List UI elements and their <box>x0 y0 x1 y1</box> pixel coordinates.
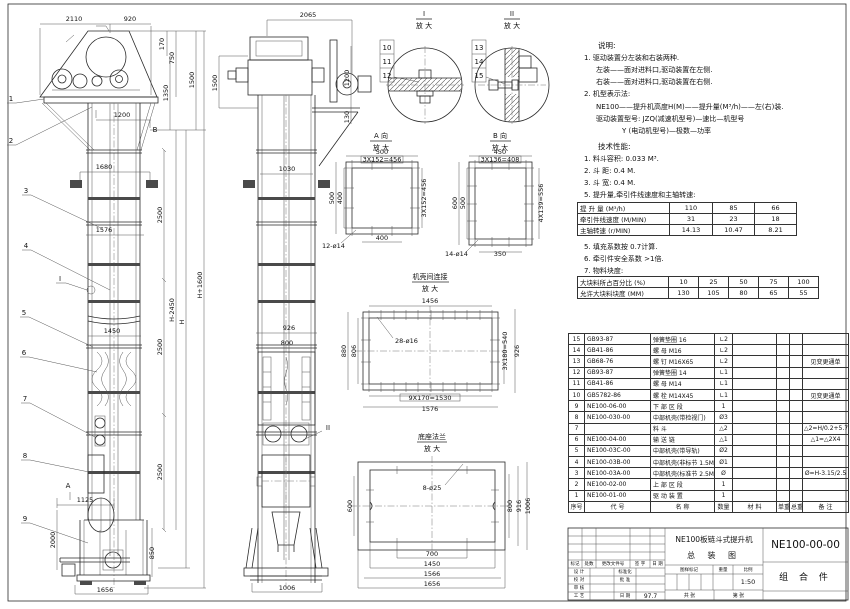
part-name: 螺 钉 M16X65 <box>651 356 715 367</box>
part-unit-weight <box>777 378 790 389</box>
part-total-weight <box>790 356 803 367</box>
note-line: 右装——面对进料口,驱动装置在右侧. <box>596 79 712 86</box>
tb-sig-label: 工 艺 <box>568 592 590 600</box>
dim-label: 926 <box>513 345 521 357</box>
part-name: 中部机壳(非标节 1.5M,1M) <box>651 457 715 468</box>
part-qty: Ø1 <box>715 457 733 468</box>
tb-rev-col: 更改文件号 <box>596 560 630 568</box>
tb-rev-col: 日 期 <box>650 560 665 568</box>
tb-sig-label: 校 对 <box>568 576 590 584</box>
dim-label: 9X170=1530 <box>409 394 452 402</box>
tech-line: 6. 牵引件安全系数 >1倍. <box>584 256 664 263</box>
dim-label: 2000 <box>49 532 57 549</box>
part-material <box>733 457 777 468</box>
detail-marker-ii: II <box>326 424 330 432</box>
part-no: 9 <box>569 401 585 412</box>
tb-sheets: 共 张 <box>665 590 714 600</box>
view-b-title: B 向 <box>493 131 507 140</box>
part-unit-weight <box>777 457 790 468</box>
parts-row: 14GB41-86螺 母 M16∟2 <box>569 345 849 356</box>
part-code: GB5782-86 <box>585 389 651 400</box>
part-qty: △1 <box>715 434 733 445</box>
lump-value: 25 <box>699 277 729 288</box>
balloon-7: 7 <box>23 395 27 403</box>
dim-label: 1006 <box>524 498 532 515</box>
tb-stamp-label: 图样标记 <box>665 565 713 574</box>
tb-sig-label: 标准化 <box>614 568 636 576</box>
part-material <box>733 356 777 367</box>
lump-value: 55 <box>789 288 819 299</box>
tb-rev-col: 处数 <box>582 560 596 568</box>
drawing-scale: 1:50 <box>733 574 763 590</box>
view-marker-a: A <box>66 482 71 490</box>
parts-list: 15GB93-87弹簧垫圈 16∟2 14GB41-86螺 母 M16∟2 13… <box>568 333 849 513</box>
hole-callout: 8-ø25 <box>423 484 442 492</box>
tb-rev-col: 标记 <box>568 560 582 568</box>
dim-label: 806 <box>350 345 358 357</box>
dim-label: 1200 <box>114 111 131 119</box>
capacity-row-label: 提 升 量 (M³/h) <box>578 203 670 214</box>
dim-label: 350 <box>494 250 506 258</box>
part-qty: Ø3 <box>715 412 733 423</box>
dim-label: 1456 <box>422 297 439 305</box>
capacity-value: 18 <box>755 214 797 225</box>
part-name: 中部机壳(带导轨) <box>651 445 715 456</box>
tb-page: 第 张 <box>714 590 763 600</box>
part-name: 上 部 区 段 <box>651 479 715 490</box>
part-unit-weight <box>777 334 790 345</box>
lump-size-table: 大块料所占百分比 (%) 10 25 50 75 100 允许大块料块度 (MM… <box>577 276 819 299</box>
part-unit-weight <box>777 401 790 412</box>
tb-weight-label: 重量 <box>713 565 733 574</box>
parts-row: 4NE100-03B-00中部机壳(非标节 1.5M,1M)Ø1 <box>569 457 849 468</box>
balloon-4: 4 <box>24 242 29 250</box>
part-total-weight <box>790 445 803 456</box>
part-total-weight <box>790 468 803 479</box>
parts-header-material: 材 料 <box>733 501 777 512</box>
parts-header-row: 序号代 号名 称数量材 料单重总重备 注 <box>569 501 849 512</box>
balloon-9: 9 <box>23 515 27 523</box>
tb-sig-label: 设 计 <box>568 568 590 576</box>
capacity-value: 66 <box>755 203 797 214</box>
tech-line: 3. 斗 宽: 0.4 M. <box>584 180 635 187</box>
view-b: B 向 放 大 450 3X136=408 600 500 350 4X139=… <box>445 131 545 258</box>
part-total-weight <box>790 367 803 378</box>
balloon-10: 10 <box>383 44 392 52</box>
dim-label: 170 <box>158 38 166 50</box>
part-material <box>733 468 777 479</box>
part-remark <box>803 457 849 468</box>
dim-label: 1006 <box>279 584 296 592</box>
part-remark: Ø=H-3.15/2.5 <box>803 468 849 479</box>
note-line: Y (电动机型号)—极数—功率 <box>622 128 711 135</box>
flange-scale: 放 大 <box>422 284 438 293</box>
base-flange-view: 底座法兰 放 大 8-ø25 600 800 916 1006 700 1450… <box>346 432 532 588</box>
drawing-number: NE100-00-00 <box>763 528 848 562</box>
dim-label: 750 <box>168 52 176 64</box>
dim-label: H <box>178 319 186 324</box>
flange-title: 机壳间连接 <box>413 272 448 281</box>
part-name: 螺 母 M14 <box>651 378 715 389</box>
dim-label: 3X152=456 <box>420 179 428 218</box>
part-code: GB41-86 <box>585 378 651 389</box>
drawing-title: NE100板链斗式提升机 <box>666 529 762 549</box>
part-code: NE100-03B-00 <box>585 457 651 468</box>
part-total-weight <box>790 412 803 423</box>
part-remark <box>803 401 849 412</box>
parts-row: 5NE100-03C-00中部机壳(带导轨)Ø2 <box>569 445 849 456</box>
balloon-15: 15 <box>475 72 484 80</box>
capacity-value: 23 <box>713 214 755 225</box>
view-marker-b: B <box>153 126 158 134</box>
part-total-weight <box>790 378 803 389</box>
dim-label: 1656 <box>97 586 114 594</box>
part-total-weight <box>790 334 803 345</box>
part-material <box>733 401 777 412</box>
part-qty: ∟2 <box>715 334 733 345</box>
dim-label: 3X180=540 <box>501 332 509 371</box>
lump-value: 100 <box>789 277 819 288</box>
lump-value: 105 <box>699 288 729 299</box>
part-code: NE100-03A-00 <box>585 468 651 479</box>
dim-label: 2500 <box>156 207 164 224</box>
dim-label: 1576 <box>422 405 439 413</box>
dim-label: 600 <box>346 500 354 512</box>
part-material <box>733 445 777 456</box>
part-no: 10 <box>569 389 585 400</box>
part-material <box>733 367 777 378</box>
part-no: 8 <box>569 412 585 423</box>
dim-label: 880 <box>340 345 348 357</box>
part-name: 输 送 链 <box>651 434 715 445</box>
dim-label: 1656 <box>424 580 441 588</box>
tb-rev-col: 签 字 <box>630 560 650 568</box>
balloon-13: 13 <box>475 44 484 52</box>
part-remark: 见变更通单 <box>803 356 849 367</box>
part-qty: 1 <box>715 479 733 490</box>
balloon-14: 14 <box>475 58 484 66</box>
parts-row: 9NE100-06-00下 部 区 段1 <box>569 401 849 412</box>
balloon-8: 8 <box>23 452 27 460</box>
part-total-weight <box>790 490 803 501</box>
hole-callout: 28-ø16 <box>395 337 418 345</box>
dim-label: 2500 <box>156 339 164 356</box>
tech-line: 7. 物料块度: <box>584 268 623 275</box>
part-code <box>585 423 651 434</box>
dim-label: 2500 <box>156 464 164 481</box>
hole-callout: 14-ø14 <box>445 250 468 258</box>
note-line: 2. 机型表示法: <box>584 91 630 98</box>
part-material <box>733 378 777 389</box>
dim-label: 1200 <box>343 70 351 87</box>
part-qty: 1 <box>715 490 733 501</box>
part-total-weight <box>790 389 803 400</box>
dim-label: 2065 <box>300 11 317 19</box>
part-code: NE100-02-00 <box>585 479 651 490</box>
part-no: 3 <box>569 468 585 479</box>
lump-value: 65 <box>759 288 789 299</box>
parts-row: 2NE100-02-00上 部 区 段1 <box>569 479 849 490</box>
detail-i-title: I <box>423 10 425 18</box>
part-remark: △2=H/0.2+5.75 <box>803 423 849 434</box>
part-qty: △2 <box>715 423 733 434</box>
part-material <box>733 345 777 356</box>
support-bracket-right <box>146 180 158 188</box>
part-code: NE100-01-00 <box>585 490 651 501</box>
capacity-value: 31 <box>670 214 713 225</box>
part-remark: 见变更通单 <box>803 389 849 400</box>
part-code: NE100-030-00 <box>585 412 651 423</box>
dim-label: H-2450 <box>168 298 176 322</box>
part-unit-weight <box>777 434 790 445</box>
part-name: 料 斗 <box>651 423 715 434</box>
tech-heading: 技术性能: <box>598 143 631 151</box>
part-no: 11 <box>569 378 585 389</box>
part-total-weight <box>790 401 803 412</box>
base-title: 底座法兰 <box>418 432 446 441</box>
dim-label: 1450 <box>104 327 121 335</box>
part-material <box>733 434 777 445</box>
part-material <box>733 389 777 400</box>
parts-header-name: 名 称 <box>651 501 715 512</box>
parts-row: 3NE100-03A-00中部机壳(标准节 2.5M)ØØ=H-3.15/2.5 <box>569 468 849 479</box>
balloon-3: 3 <box>24 187 28 195</box>
part-qty: ∟2 <box>715 356 733 367</box>
part-material <box>733 490 777 501</box>
part-no: 4 <box>569 457 585 468</box>
part-no: 2 <box>569 479 585 490</box>
parts-header-remark: 备 注 <box>803 501 849 512</box>
balloon-5: 5 <box>22 309 26 317</box>
dim-label: 1680 <box>96 163 113 171</box>
part-remark: △1=△2X4 <box>803 434 849 445</box>
part-code: GB93-87 <box>585 367 651 378</box>
dim-label: 400 <box>336 192 344 204</box>
capacity-value: 110 <box>670 203 713 214</box>
part-qty: ∟2 <box>715 345 733 356</box>
notes-heading: 说明: <box>598 42 616 50</box>
parts-header-total-weight: 总重 <box>790 501 803 512</box>
detail-marker-i: I <box>59 275 61 283</box>
lump-value: 130 <box>669 288 699 299</box>
part-remark <box>803 345 849 356</box>
tb-scale-label: 比例 <box>733 565 763 574</box>
part-no: 15 <box>569 334 585 345</box>
dim-label: 920 <box>124 15 136 23</box>
drawing-subtitle: 总 装 图 <box>666 547 762 564</box>
part-remark <box>803 445 849 456</box>
lump-value: 80 <box>729 288 759 299</box>
part-remark <box>803 479 849 490</box>
balloon-1: 1 <box>9 95 13 103</box>
part-qty: Ø <box>715 468 733 479</box>
dim-label: 1500 <box>188 72 196 89</box>
dim-label: 500 <box>328 192 336 204</box>
dim-label: 1576 <box>96 226 113 234</box>
dim-label: 700 <box>426 550 438 558</box>
parts-row: 6NE100-04-00输 送 链△1△1=△2X4 <box>569 434 849 445</box>
dim-label: 1030 <box>279 165 296 173</box>
dim-label: 600 <box>451 197 459 209</box>
parts-row: 15GB93-87弹簧垫圈 16∟2 <box>569 334 849 345</box>
part-qty: 1 <box>715 401 733 412</box>
part-code: NE100-03C-00 <box>585 445 651 456</box>
view-a-title: A 向 <box>374 131 388 140</box>
hole-callout: 12-ø14 <box>322 242 345 250</box>
dim-label: 3X136=408 <box>481 156 520 164</box>
dim-label: 1500 <box>211 75 219 92</box>
part-qty: Ø2 <box>715 445 733 456</box>
parts-row: 10GB5782-86螺 栓 M14X45∟1见变更通单 <box>569 389 849 400</box>
part-no: 13 <box>569 356 585 367</box>
balloon-12: 12 <box>383 72 392 80</box>
part-name: 螺 母 M16 <box>651 345 715 356</box>
part-name: 螺 栓 M14X45 <box>651 389 715 400</box>
note-line: NE100——提升机高度H(M)——提升量(M³/h)——左(右)装. <box>596 104 784 111</box>
base-scale: 放 大 <box>424 444 440 453</box>
lump-row-label: 允许大块料块度 (MM) <box>578 288 669 299</box>
dim-label: 2110 <box>66 15 83 23</box>
tech-line: 1. 料斗容积: 0.033 M³. <box>584 156 659 163</box>
part-unit-weight <box>777 490 790 501</box>
part-no: 7 <box>569 423 585 434</box>
tb-sig-label: 批 准 <box>614 576 636 584</box>
tech-line: 5. 提升量,牵引件线速度和主轴转速: <box>584 192 696 199</box>
detail-i: I 放 大 10 11 12 <box>380 10 464 124</box>
dim-label: 500 <box>459 197 467 209</box>
part-unit-weight <box>777 367 790 378</box>
dim-label: 800 <box>281 339 293 347</box>
part-remark <box>803 490 849 501</box>
detail-ii-scale: 放 大 <box>504 21 520 30</box>
parts-header-unit-weight: 单重 <box>777 501 790 512</box>
assembly-drawing-svg: 2110 920 170 750 1350 1500 1200 B 1680 1… <box>0 0 850 609</box>
part-no: 14 <box>569 345 585 356</box>
part-code: GB68-76 <box>585 356 651 367</box>
dim-label: 916 <box>515 500 523 512</box>
part-name: 中部机壳(标准节 2.5M) <box>651 468 715 479</box>
part-no: 6 <box>569 434 585 445</box>
part-material <box>733 334 777 345</box>
detail-ii: II 放 大 13 14 15 <box>472 10 549 124</box>
part-qty: ∟1 <box>715 389 733 400</box>
part-total-weight <box>790 479 803 490</box>
view-a: A 向 放 大 500 3X152=456 500 400 400 3X152=… <box>322 131 428 250</box>
dim-label: H+1600 <box>196 272 204 299</box>
capacity-table: 提 升 量 (M³/h) 110 85 66 牵引件线速度 (M/MIN) 31… <box>577 202 797 236</box>
parts-row: 11GB41-86螺 母 M14∟1 <box>569 378 849 389</box>
tb-sig-label: 审 核 <box>568 584 590 592</box>
drawing-sheet: 2110 920 170 750 1350 1500 1200 B 1680 1… <box>0 0 850 609</box>
part-total-weight <box>790 423 803 434</box>
parts-header-no: 序号 <box>569 501 585 512</box>
parts-header-code: 代 号 <box>585 501 651 512</box>
capacity-value: 85 <box>713 203 755 214</box>
parts-row: 8NE100-030-00中部机壳(带检视门)Ø3 <box>569 412 849 423</box>
part-code: NE100-06-00 <box>585 401 651 412</box>
parts-row: 13GB68-76螺 钉 M16X65∟2见变更通单 <box>569 356 849 367</box>
part-unit-weight <box>777 412 790 423</box>
tech-line: 2. 斗 距: 0.4 M. <box>584 168 635 175</box>
casing-flange-view: 机壳间连接 放 大 1456 28-ø16 880 806 3X180=540 … <box>340 272 521 413</box>
dim-label: 1350 <box>162 85 170 102</box>
lump-value: 75 <box>759 277 789 288</box>
dim-label: 400 <box>376 234 388 242</box>
part-remark <box>803 378 849 389</box>
parts-row: 1NE100-01-00驱 动 装 置1 <box>569 490 849 501</box>
part-name: 弹簧垫圈 14 <box>651 367 715 378</box>
part-unit-weight <box>777 356 790 367</box>
lump-row-label: 大块料所占百分比 (%) <box>578 277 669 288</box>
dim-label: 1450 <box>424 560 441 568</box>
dim-label: 926 <box>283 324 295 332</box>
capacity-row-label: 主轴转速 (r/MIN) <box>578 225 670 236</box>
part-unit-weight <box>777 445 790 456</box>
part-no: 5 <box>569 445 585 456</box>
part-total-weight <box>790 345 803 356</box>
part-material <box>733 412 777 423</box>
part-remark <box>803 334 849 345</box>
part-remark <box>803 367 849 378</box>
part-unit-weight <box>777 468 790 479</box>
detail-i-scale: 放 大 <box>416 21 432 30</box>
dim-label: 3X152=456 <box>363 156 402 164</box>
part-unit-weight <box>777 345 790 356</box>
part-no: 12 <box>569 367 585 378</box>
detail-ii-title: II <box>510 10 514 18</box>
part-code: GB93-87 <box>585 334 651 345</box>
part-material <box>733 423 777 434</box>
capacity-value: 14.13 <box>670 225 713 236</box>
dim-label: 130 <box>343 111 351 123</box>
balloon-2: 2 <box>9 137 13 145</box>
note-line: 左装——面对进料口,驱动装置在左侧. <box>596 67 712 74</box>
tech-line: 5. 填充系数按 0.7计算. <box>584 244 658 251</box>
part-no: 1 <box>569 490 585 501</box>
lump-value: 50 <box>729 277 759 288</box>
balloon-6: 6 <box>22 349 27 357</box>
capacity-value: 10.47 <box>713 225 755 236</box>
part-name: 驱 动 装 置 <box>651 490 715 501</box>
tb-date-label: 日 期 <box>614 592 636 600</box>
part-unit-weight <box>777 479 790 490</box>
dim-label: 1125 <box>77 496 94 504</box>
support-bracket-left <box>70 180 82 188</box>
parts-row: 7料 斗△2△2=H/0.2+5.75 <box>569 423 849 434</box>
part-name: 中部机壳(带检视门) <box>651 412 715 423</box>
part-qty: ∟1 <box>715 378 733 389</box>
part-qty: ∟1 <box>715 367 733 378</box>
part-code: GB41-86 <box>585 345 651 356</box>
capacity-row-label: 牵引件线速度 (M/MIN) <box>578 214 670 225</box>
dim-label: 800 <box>506 500 514 512</box>
part-code: NE100-04-00 <box>585 434 651 445</box>
part-type: 组 合 件 <box>763 562 848 591</box>
part-material <box>733 479 777 490</box>
part-name: 下 部 区 段 <box>651 401 715 412</box>
note-line: 1. 驱动装置分左装和右装两种. <box>584 55 679 62</box>
parts-row: 12GB93-87弹簧垫圈 14∟1 <box>569 367 849 378</box>
parts-header-qty: 数量 <box>715 501 733 512</box>
part-unit-weight <box>777 389 790 400</box>
tb-date-value: 97.7 <box>636 592 665 600</box>
balloon-11: 11 <box>383 58 392 66</box>
part-name: 弹簧垫圈 16 <box>651 334 715 345</box>
dim-label: 850 <box>148 547 156 559</box>
note-line: 驱动装置型号: JZQ(减速机型号)—速比—机型号 <box>596 116 744 123</box>
part-unit-weight <box>777 423 790 434</box>
part-remark <box>803 412 849 423</box>
